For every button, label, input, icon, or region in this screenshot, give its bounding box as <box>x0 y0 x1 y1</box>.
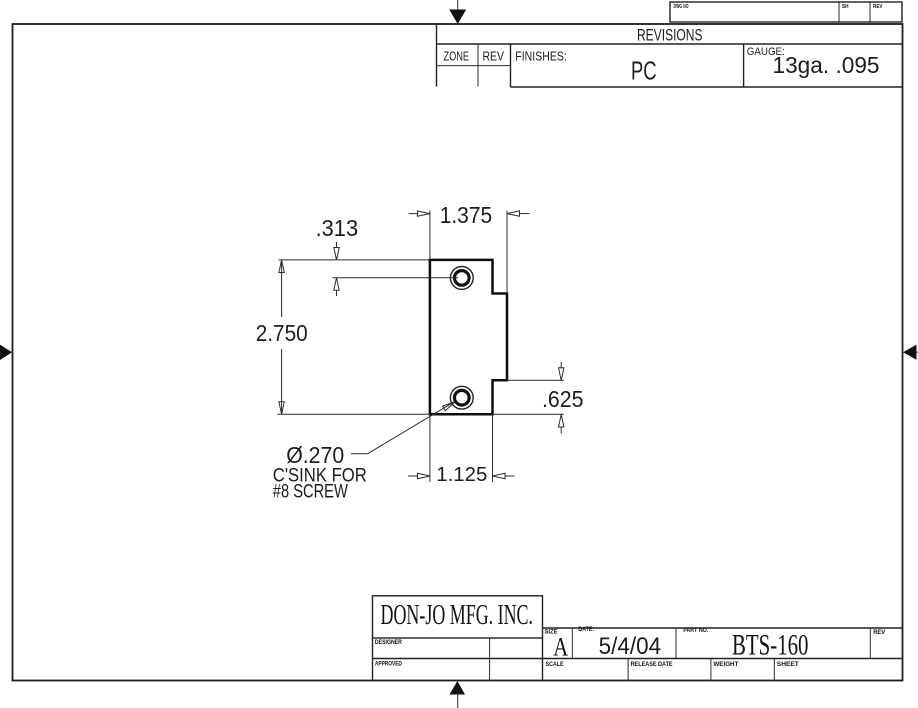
svg-text:SH: SH <box>842 4 849 10</box>
svg-text:FINISHES:: FINISHES: <box>515 49 567 63</box>
svg-text:PART NO.: PART NO. <box>683 628 708 634</box>
svg-text:13ga. .095: 13ga. .095 <box>773 52 880 78</box>
svg-text:DESIGNER: DESIGNER <box>375 640 403 646</box>
svg-text:DWG NO: DWG NO <box>674 4 689 10</box>
svg-text:BTS-160: BTS-160 <box>732 630 809 662</box>
svg-text:DON-JO MFG. INC.: DON-JO MFG. INC. <box>381 600 534 631</box>
svg-text:WEIGHT: WEIGHT <box>713 662 738 668</box>
svg-text:PC: PC <box>631 58 657 86</box>
svg-text:SCALE: SCALE <box>546 662 564 668</box>
svg-text:.625: .625 <box>542 386 584 412</box>
svg-text:#8 SCREW: #8 SCREW <box>273 481 348 502</box>
svg-text:REV: REV <box>873 4 883 10</box>
svg-text:SHEET: SHEET <box>777 662 799 668</box>
svg-text:A: A <box>553 631 568 661</box>
svg-text:1.375: 1.375 <box>440 202 493 228</box>
svg-text:REV: REV <box>483 50 505 64</box>
svg-text:APPROVED: APPROVED <box>375 662 403 668</box>
svg-text:RELEASE DATE: RELEASE DATE <box>631 662 673 668</box>
svg-text:2.750: 2.750 <box>256 320 308 346</box>
svg-text:REVISIONS: REVISIONS <box>637 25 703 44</box>
svg-text:REV: REV <box>873 630 885 636</box>
svg-text:.313: .313 <box>316 215 359 241</box>
svg-text:DATE:: DATE: <box>578 627 594 633</box>
svg-text:Ø.270: Ø.270 <box>286 442 344 468</box>
svg-text:ZONE: ZONE <box>444 50 470 64</box>
svg-text:1.125: 1.125 <box>436 463 487 486</box>
svg-text:5/4/04: 5/4/04 <box>599 633 662 660</box>
